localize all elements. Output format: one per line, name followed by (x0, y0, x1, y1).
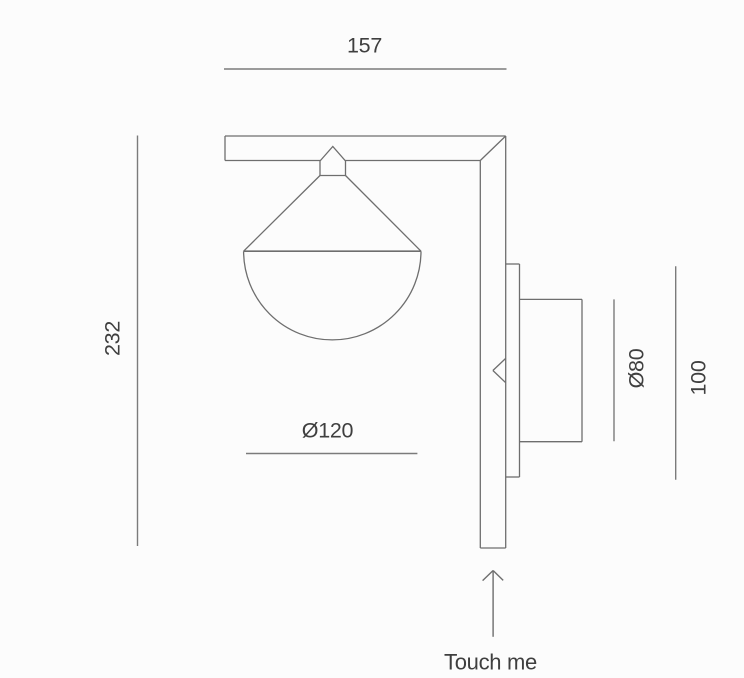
svg-text:232: 232 (101, 321, 125, 356)
svg-text:Ø120: Ø120 (302, 419, 354, 443)
svg-text:157: 157 (347, 34, 382, 58)
svg-text:Touch me: Touch me (444, 650, 537, 675)
svg-text:Ø80: Ø80 (625, 348, 649, 388)
svg-text:100: 100 (687, 360, 711, 395)
